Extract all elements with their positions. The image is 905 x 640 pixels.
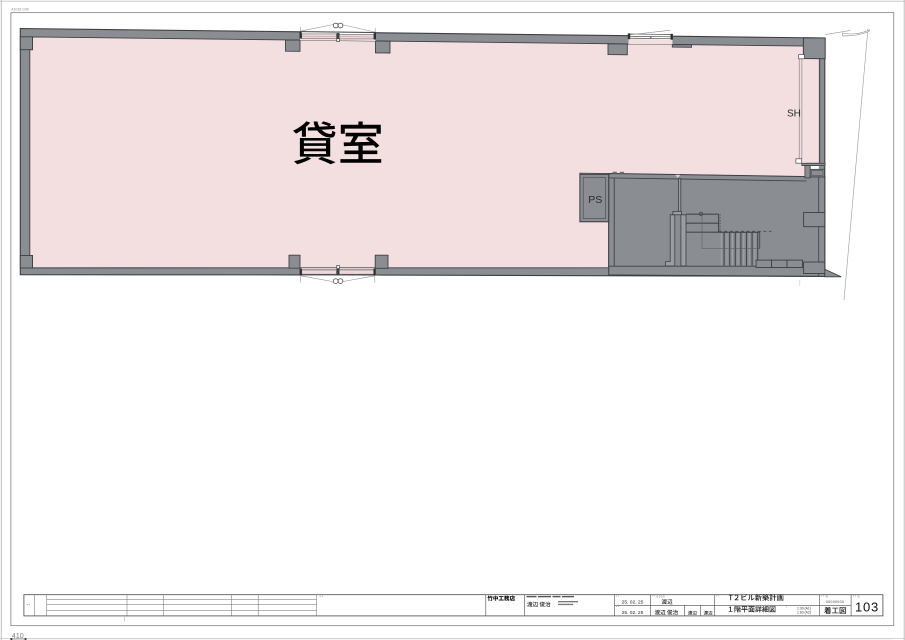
- svg-text:* * 0 0 0 0: * * 0 0 0 0: [653, 595, 666, 599]
- svg-text:* *: * *: [616, 595, 619, 599]
- svg-text:PS: PS: [588, 194, 602, 206]
- svg-text:103: 103: [855, 599, 879, 614]
- svg-text:* * *0: * * *0: [853, 595, 860, 599]
- svg-text:A1018 1/30: A1018 1/30: [11, 7, 28, 11]
- svg-text:25. 02. 25: 25. 02. 25: [622, 610, 644, 616]
- svg-text:*: *: [786, 606, 787, 610]
- svg-text:* *: * *: [616, 605, 619, 609]
- svg-text:* * *0: * * *0: [821, 595, 828, 599]
- svg-text:25. 02. 25: 25. 02. 25: [622, 600, 644, 606]
- svg-text:1:60 (A2): 1:60 (A2): [797, 610, 811, 614]
- svg-text:* *: * *: [716, 595, 719, 599]
- svg-text:SH: SH: [787, 108, 801, 119]
- svg-text:00000000: 00000000: [826, 600, 844, 604]
